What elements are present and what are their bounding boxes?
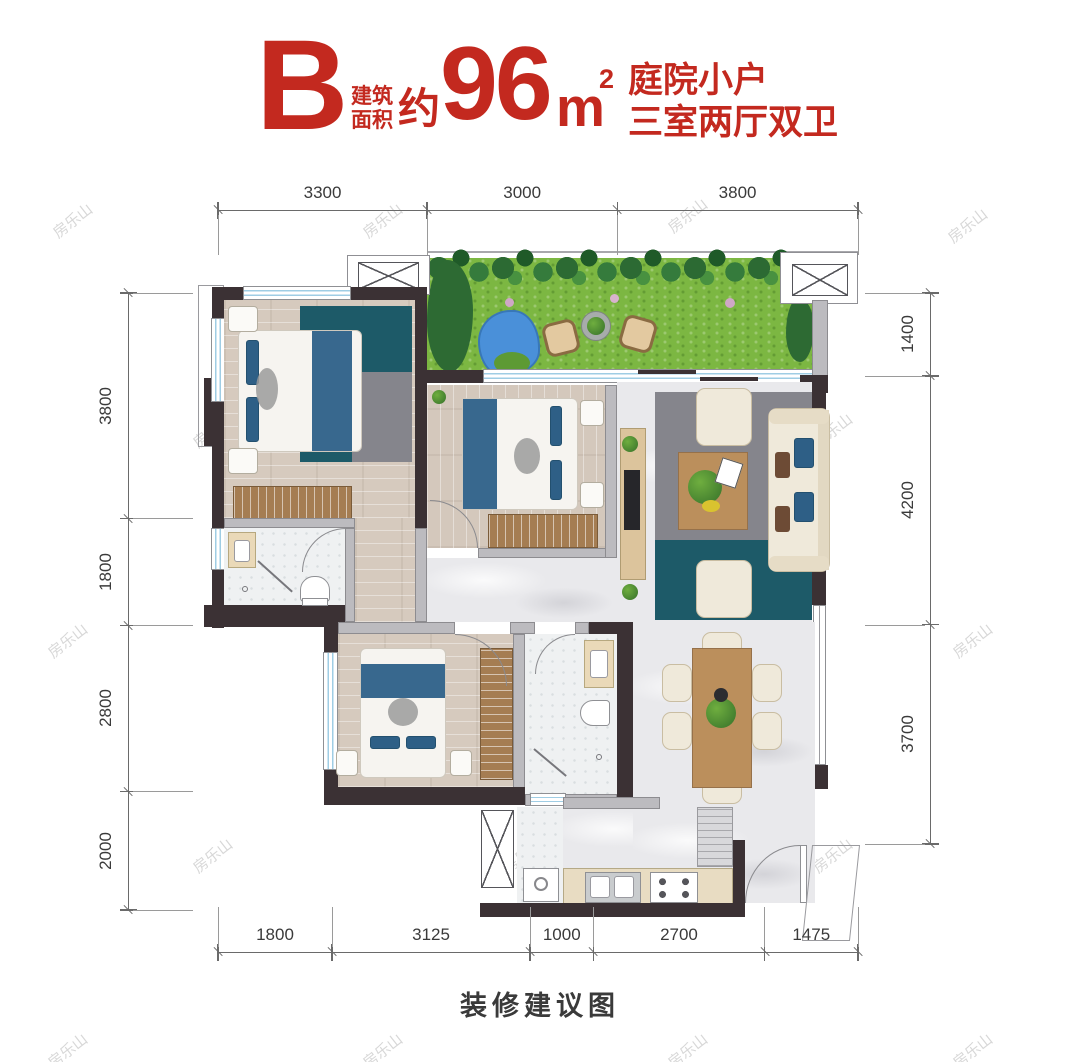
dim-label: 2000: [96, 811, 116, 891]
dim-ext: [865, 376, 925, 377]
dim-label: 1800: [235, 925, 315, 945]
dim-ext: [133, 293, 193, 294]
dim-label: 3000: [482, 183, 562, 203]
floorplan-page: B 建筑 面积 约 96 m 2 庭院小户 三室两厅双卫 房乐山房乐山房乐山房乐…: [0, 0, 1080, 1062]
dim-label: 3700: [898, 694, 918, 774]
dim-line: [128, 293, 129, 910]
dim-ext: [764, 907, 765, 947]
dim-label: 1800: [96, 532, 116, 612]
caption: 装修建议图: [0, 984, 1080, 1023]
dim-ext: [332, 907, 333, 947]
dim-label: 4200: [898, 460, 918, 540]
dim-ext: [133, 625, 193, 626]
dim-label: 3125: [391, 925, 471, 945]
dim-ext: [133, 791, 193, 792]
dim-line: [218, 952, 858, 953]
dim-label: 3800: [698, 183, 778, 203]
dim-ext: [427, 215, 428, 255]
dim-ext: [858, 215, 859, 255]
dim-ext: [133, 518, 193, 519]
dim-ext: [218, 907, 219, 947]
dim-ext: [858, 907, 859, 947]
dim-label: 2700: [639, 925, 719, 945]
dim-label: 1475: [771, 925, 851, 945]
dim-label: 3800: [96, 366, 116, 446]
dim-label: 1400: [898, 294, 918, 374]
dim-ext: [865, 844, 925, 845]
dim-label: 1000: [522, 925, 602, 945]
dim-label: 3300: [283, 183, 363, 203]
dim-ext: [865, 625, 925, 626]
dim-ext: [218, 215, 219, 255]
dimension-layer: 3300300038001800312510002700147538001800…: [0, 0, 1080, 1062]
dim-line: [218, 210, 858, 211]
dim-ext: [133, 910, 193, 911]
dim-ext: [617, 215, 618, 255]
dim-label: 2800: [96, 668, 116, 748]
